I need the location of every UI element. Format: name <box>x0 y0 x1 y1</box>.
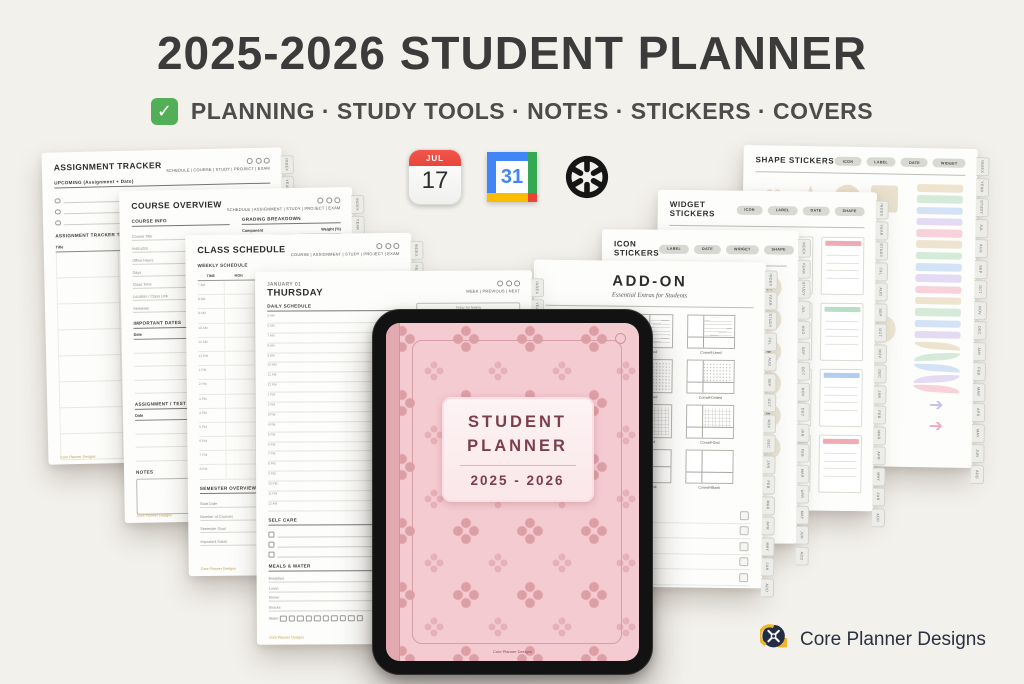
paper-template[interactable]: Cornell-Lined <box>687 314 735 355</box>
side-tab[interactable]: ADD <box>872 508 885 527</box>
filter-pill[interactable]: LABEL <box>866 157 896 167</box>
filter-pill[interactable]: WIDGET <box>933 158 966 168</box>
bar-sticker[interactable] <box>917 184 963 192</box>
filter-pill[interactable]: DATE <box>802 206 829 215</box>
side-tab[interactable]: OCT <box>974 280 987 299</box>
pill-row: ICONLABELDATEWIDGET <box>835 157 966 168</box>
side-tab[interactable]: YEAR <box>352 215 365 234</box>
ribbon-sticker[interactable] <box>914 341 960 350</box>
side-tab[interactable]: JUL <box>875 262 888 281</box>
side-tab[interactable]: STUDY <box>976 198 989 217</box>
ribbon-sticker[interactable] <box>914 363 960 372</box>
side-tab[interactable]: JAN <box>762 455 775 474</box>
side-tab[interactable]: SEP <box>874 303 887 322</box>
cover-years: 2025 - 2026 <box>452 473 584 488</box>
side-tab[interactable]: INDEX <box>765 270 778 289</box>
side-tab[interactable]: MAY <box>761 537 774 556</box>
widget-sticker[interactable] <box>820 303 863 362</box>
side-tab[interactable]: FEB <box>796 444 809 463</box>
page-nav[interactable]: SCHEDULE | COURSE | STUDY | PROJECT | EX… <box>166 166 270 173</box>
ring-icon <box>615 333 626 344</box>
subtitle-row: ✓ PLANNING · STUDY TOOLS · NOTES · STICK… <box>0 98 1024 125</box>
side-tab[interactable]: AUG <box>875 282 888 301</box>
page-title: COURSE OVERVIEW <box>131 199 222 211</box>
openai-logo-icon <box>559 148 615 206</box>
side-tab[interactable]: FEB <box>973 362 986 381</box>
arrow-sticker[interactable]: ➔ <box>929 396 944 413</box>
side-tab[interactable]: DEC <box>874 364 887 383</box>
bar-sticker[interactable] <box>917 195 963 203</box>
side-tab[interactable]: STUDY <box>875 241 888 260</box>
bar-sticker[interactable] <box>916 229 962 237</box>
side-tab[interactable]: ADD <box>761 578 774 597</box>
page-action-icons <box>466 280 520 286</box>
page-nav[interactable]: SCHEDULE | ASSIGNMENT | STUDY | PROJECT … <box>227 205 341 212</box>
promo-canvas: SHAPE STICKERS ICONLABELDATEWIDGET ♥★ ➔➔… <box>0 0 1024 684</box>
apple-calendar-icon: JUL 17 <box>408 149 462 205</box>
widget-sticker[interactable] <box>821 237 864 296</box>
ribbon-sticker[interactable] <box>914 353 960 362</box>
page-title: SHAPE STICKERS <box>755 155 834 165</box>
side-tab[interactable]: ADD <box>796 546 809 565</box>
filter-pill[interactable]: ICON <box>736 205 763 214</box>
bar-sticker[interactable] <box>916 218 962 226</box>
page-footer: Core Planner Designs <box>201 567 236 571</box>
page-title: ASSIGNMENT TRACKER <box>54 160 162 172</box>
side-tab[interactable]: YEAR <box>875 221 888 240</box>
side-tab[interactable]: MAY <box>796 505 809 524</box>
bar-sticker[interactable] <box>916 240 962 248</box>
cover-label[interactable]: STUDENT PLANNER 2025 - 2026 <box>442 397 594 502</box>
side-tab[interactable]: YEAR <box>798 259 811 278</box>
bar-sticker[interactable] <box>916 263 962 271</box>
side-tab[interactable]: INDEX <box>876 200 889 219</box>
tab-strip: INDEXYEARSTUDYJULAUGSEPOCTNOVDECJANFEBMA… <box>872 200 888 527</box>
brand-name: Core Planner Designs <box>800 629 986 651</box>
side-tab[interactable]: INDEX <box>281 155 294 174</box>
cover-spine <box>386 323 400 661</box>
side-tab[interactable]: DEC <box>797 403 810 422</box>
widget-sticker[interactable] <box>819 369 862 428</box>
cover-action-button[interactable] <box>739 542 748 551</box>
side-tab[interactable]: AUG <box>764 352 777 371</box>
page-action-icons <box>227 197 341 205</box>
side-tab[interactable]: APR <box>762 516 775 535</box>
side-tab[interactable]: JAN <box>973 342 986 361</box>
side-tab[interactable]: STUDY <box>764 311 777 330</box>
day-col-label: TIME <box>198 274 224 278</box>
page-title: CLASS SCHEDULE <box>197 244 285 255</box>
cover-action-button[interactable] <box>740 526 749 535</box>
bar-sticker[interactable] <box>915 274 961 282</box>
ribbon-sticker[interactable] <box>914 374 960 383</box>
side-tab[interactable]: NOV <box>974 301 987 320</box>
side-tab[interactable]: MAR <box>972 383 985 402</box>
filter-pill[interactable]: SHAPE <box>834 206 864 215</box>
cover-title-line1: STUDENT <box>452 411 584 435</box>
side-tab[interactable]: MAR <box>873 426 886 445</box>
paper-template[interactable]: Cornell-Grid <box>686 404 734 445</box>
side-tab[interactable]: DEC <box>763 434 776 453</box>
side-tab[interactable]: MAR <box>796 464 809 483</box>
page-action-icons <box>291 243 400 250</box>
tablet: STUDENT PLANNER 2025 - 2026 Core Planner… <box>372 309 653 675</box>
side-tab[interactable]: JAN <box>797 423 810 442</box>
side-tab[interactable]: DEC <box>973 321 986 340</box>
upcoming-label: UPCOMING (Assignment + Date) <box>54 176 270 189</box>
pill-row: ICONLABELDATESHAPE <box>736 205 865 216</box>
bar-sticker[interactable] <box>915 308 961 316</box>
page-footer: Core Planner Designs <box>269 635 304 639</box>
bar-sticker[interactable] <box>915 320 961 328</box>
filter-pill[interactable]: WIDGET <box>726 245 759 254</box>
daily-schedule-label: DAILY SCHEDULE <box>267 303 406 312</box>
day-col-label: MON <box>224 273 253 277</box>
page-subtitle: Essential Extras for Students <box>546 291 754 301</box>
side-tab[interactable]: STUDY <box>798 280 811 299</box>
side-tab[interactable]: OCT <box>763 393 776 412</box>
paper-template[interactable]: Cornell-Dotted <box>686 359 734 400</box>
arrow-sticker[interactable]: ➔ <box>929 417 944 434</box>
side-tab[interactable]: INDEX <box>798 239 811 258</box>
brand-logo-icon <box>760 622 790 657</box>
side-tab[interactable]: ADD <box>971 465 984 484</box>
widget-sticker[interactable] <box>819 435 862 494</box>
side-tab[interactable]: INDEX <box>976 157 989 176</box>
ribbon-sticker[interactable] <box>913 385 959 394</box>
cover-title-line2: PLANNER <box>452 435 584 459</box>
side-tab[interactable]: AUG <box>975 239 988 258</box>
side-tab[interactable]: MAR <box>762 496 775 515</box>
pill-row: LABELDATEWIDGETSHAPE <box>659 244 794 254</box>
daily-day: THURSDAY <box>267 287 323 298</box>
side-tab[interactable]: APR <box>796 485 809 504</box>
page-nav[interactable]: COURSE | ASSIGNMENT | STUDY | PROJECT | … <box>291 251 400 257</box>
side-tab[interactable]: AUG <box>797 321 810 340</box>
side-tab[interactable]: OCT <box>797 362 810 381</box>
side-tab[interactable]: SEP <box>975 260 988 279</box>
course-info-label: COURSE INFO <box>132 217 230 227</box>
side-tab[interactable]: APR <box>972 403 985 422</box>
side-tab[interactable]: INDEX <box>351 195 364 214</box>
side-tab[interactable]: JUN <box>872 487 885 506</box>
side-tab[interactable]: JUL <box>764 332 777 351</box>
checkmark-icon: ✓ <box>151 98 178 125</box>
page-title: ADD-ON <box>546 272 754 292</box>
page-nav[interactable]: WEEK | PREVIOUS | NEXT <box>466 288 520 293</box>
page-title: ICON STICKERS <box>614 239 659 257</box>
cover-action-button[interactable] <box>739 573 748 582</box>
cover-footer: Core Planner Designs <box>386 649 639 654</box>
side-tab[interactable]: NOV <box>797 382 810 401</box>
filter-pill[interactable]: ICON <box>835 157 862 166</box>
side-tab[interactable]: NOV <box>874 344 887 363</box>
weekly-label: WEEKLY SCHEDULE <box>198 261 400 270</box>
filter-pill[interactable]: DATE <box>694 244 721 253</box>
side-tab[interactable]: JUN <box>971 444 984 463</box>
filter-pill[interactable]: LABEL <box>768 206 798 215</box>
side-tab[interactable]: APR <box>873 446 886 465</box>
side-tab[interactable]: JUN <box>796 526 809 545</box>
side-tab[interactable]: FEB <box>873 405 886 424</box>
side-tab[interactable]: FEB <box>762 475 775 494</box>
page-action-icons <box>166 158 270 166</box>
bar-sticker[interactable] <box>915 297 961 305</box>
cover-divider <box>460 465 576 466</box>
grading-label: GRADING BREAKDOWN <box>242 215 341 225</box>
side-tab[interactable]: SEP <box>763 373 776 392</box>
page-footer: Core Planner Designs <box>137 513 172 518</box>
side-tab[interactable]: NOV <box>763 414 776 433</box>
cover-action-button[interactable] <box>739 557 748 566</box>
bar-sticker[interactable] <box>916 252 962 260</box>
side-tab[interactable]: JAN <box>873 385 886 404</box>
side-tab[interactable]: JUN <box>761 557 774 576</box>
side-tab[interactable]: JUL <box>975 219 988 238</box>
bar-sticker[interactable] <box>917 207 963 215</box>
planner-cover: STUDENT PLANNER 2025 - 2026 Core Planner… <box>386 323 639 661</box>
side-tab[interactable]: OCT <box>874 323 887 342</box>
side-tab[interactable]: YEAR <box>764 291 777 310</box>
page-title: 2025-2026 STUDENT PLANNER <box>0 26 1024 80</box>
bar-column: ➔➔ <box>911 184 965 435</box>
google-calendar-icon: 31 <box>487 152 537 202</box>
filter-pill[interactable]: SHAPE <box>764 245 794 254</box>
side-tab[interactable]: MAY <box>972 424 985 443</box>
filter-pill[interactable]: LABEL <box>659 244 689 253</box>
bar-sticker[interactable] <box>914 331 960 339</box>
paper-template[interactable]: Cornell-Blank <box>685 449 733 490</box>
side-tab[interactable]: MAY <box>872 467 885 486</box>
side-tab[interactable]: SEP <box>797 341 810 360</box>
subtitle-text: PLANNING · STUDY TOOLS · NOTES · STICKER… <box>191 98 873 125</box>
tab-strip: INDEXYEARSTUDYJULAUGSEPOCTNOVDECJANFEBMA… <box>796 239 811 566</box>
page-footer: Core Planner Designs <box>60 455 95 460</box>
filter-pill[interactable]: DATE <box>901 158 928 167</box>
brand-row: Core Planner Designs <box>760 622 986 657</box>
side-tab[interactable]: INDEX <box>531 278 544 297</box>
side-tab[interactable]: INDEX <box>410 241 423 260</box>
side-tab[interactable]: YEAR <box>976 178 989 197</box>
tab-strip: INDEXYEARSTUDYJULAUGSEPOCTNOVDECJANFEBMA… <box>761 270 777 597</box>
bar-sticker[interactable] <box>915 286 961 294</box>
page-title: WIDGET STICKERS <box>670 200 737 219</box>
cover-action-button[interactable] <box>740 511 749 520</box>
side-tab[interactable]: JUL <box>797 300 810 319</box>
